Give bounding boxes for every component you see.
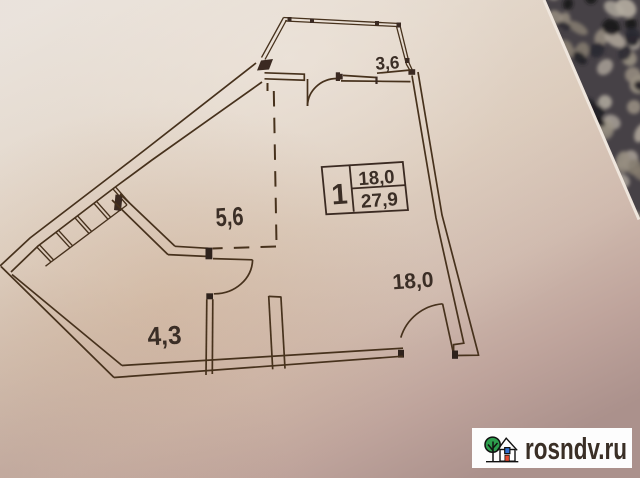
svg-text:4,3: 4,3 [147,320,183,352]
svg-text:rosndv.ru: rosndv.ru [525,431,627,466]
svg-text:1: 1 [330,178,348,211]
svg-text:27,9: 27,9 [360,189,398,213]
svg-text:18,0: 18,0 [392,268,435,295]
svg-text:5,6: 5,6 [215,201,245,232]
svg-text:18,0: 18,0 [358,167,395,190]
svg-text:3,6: 3,6 [375,52,400,73]
